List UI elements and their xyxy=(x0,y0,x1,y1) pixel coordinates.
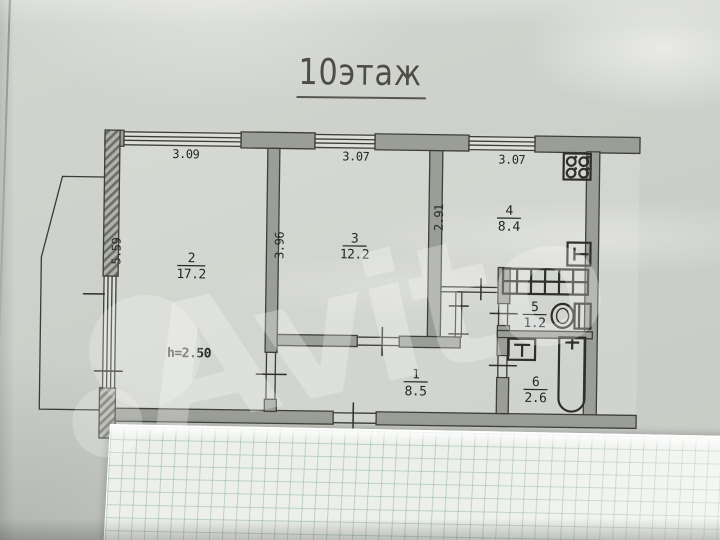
window-kitchen xyxy=(469,137,535,151)
svg-text:6: 6 xyxy=(532,375,540,390)
svg-text:8.5: 8.5 xyxy=(404,384,426,399)
graph-paper-sheet xyxy=(102,424,720,540)
svg-text:5.59: 5.59 xyxy=(109,237,123,264)
svg-text:3: 3 xyxy=(351,231,359,246)
ceiling-height-label: h=2.50 xyxy=(167,346,212,362)
svg-text:12.2: 12.2 xyxy=(340,247,370,262)
svg-text:3.96: 3.96 xyxy=(272,232,286,259)
svg-text:5: 5 xyxy=(531,300,539,315)
svg-text:2.91: 2.91 xyxy=(432,204,446,231)
svg-text:2: 2 xyxy=(188,251,196,266)
svg-text:3.09: 3.09 xyxy=(172,147,199,161)
svg-text:1.2: 1.2 xyxy=(523,316,545,331)
balcony-outline xyxy=(39,176,104,410)
window-room3 xyxy=(315,134,375,148)
floorplan-photo: 10этаж xyxy=(0,0,720,540)
svg-text:3.07: 3.07 xyxy=(498,152,525,166)
svg-text:4: 4 xyxy=(505,204,513,219)
svg-text:8.4: 8.4 xyxy=(498,219,521,234)
svg-text:17.2: 17.2 xyxy=(176,267,206,282)
svg-text:1: 1 xyxy=(412,367,420,382)
svg-text:2.6: 2.6 xyxy=(524,391,546,406)
window-room2 xyxy=(124,132,241,147)
svg-text:3.07: 3.07 xyxy=(342,149,369,163)
